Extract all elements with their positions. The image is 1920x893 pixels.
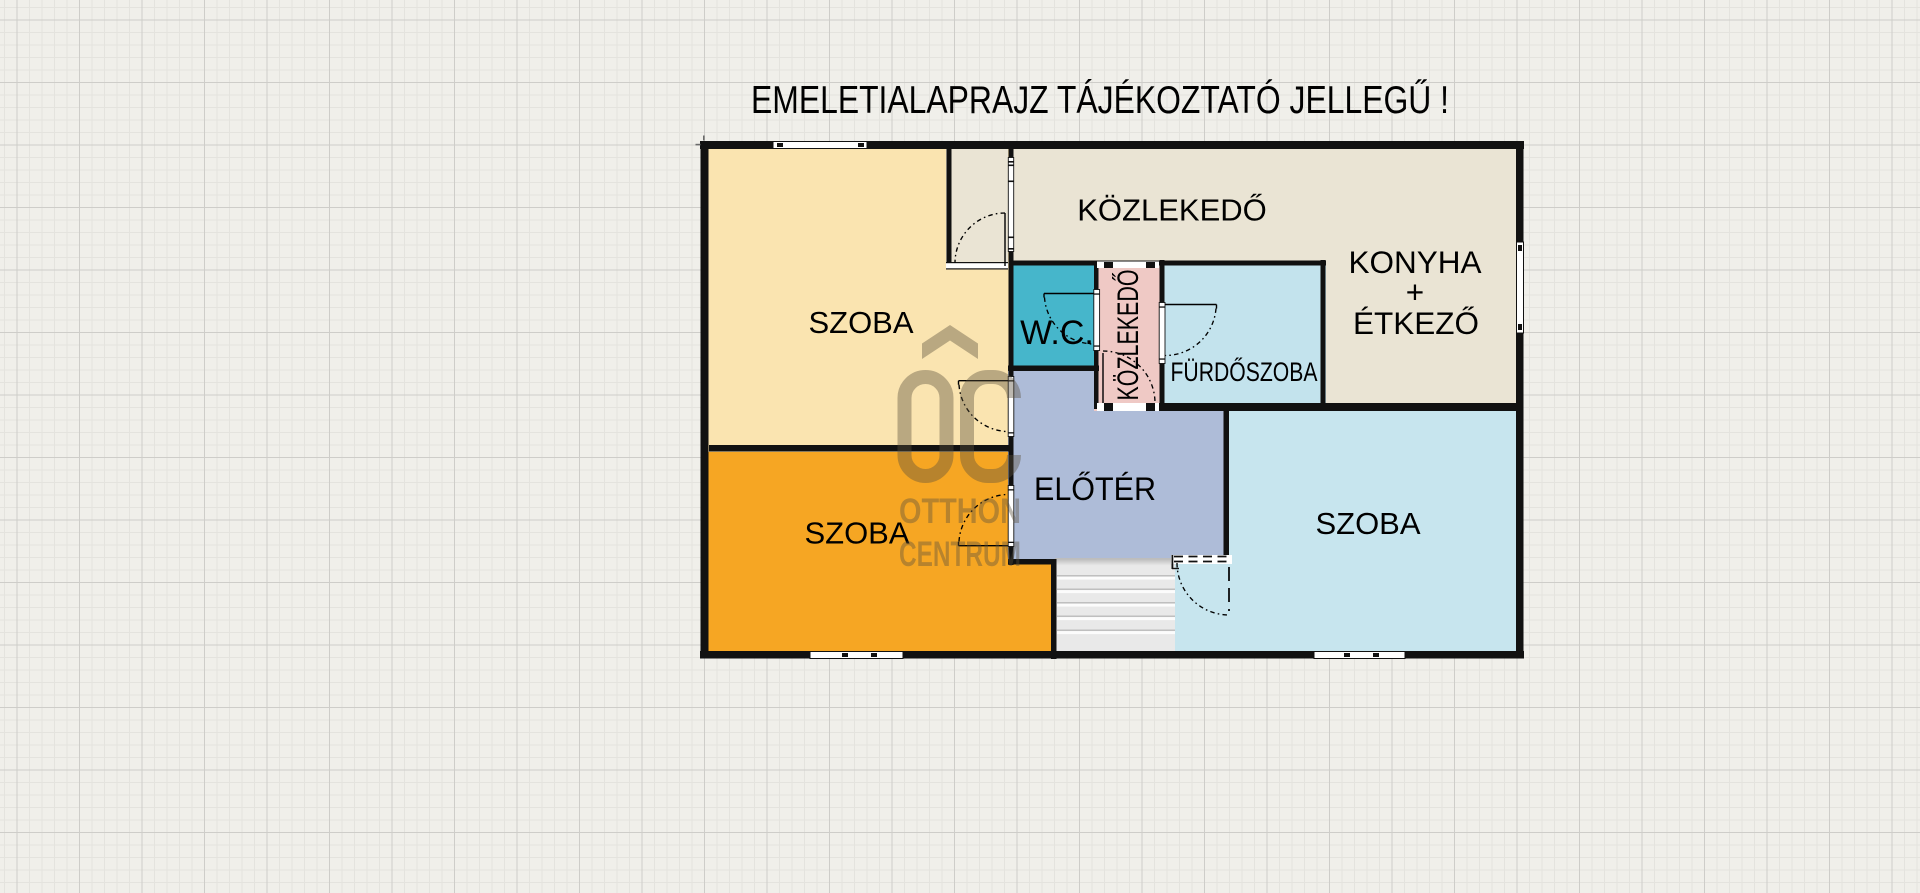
svg-text:SZOBA: SZOBA [1315,506,1420,541]
svg-text:EMELETIALAPRAJZ TÁJÉKOZTATÓ JE: EMELETIALAPRAJZ TÁJÉKOZTATÓ JELLEGŰ ! [751,79,1449,122]
svg-text:SZOBA: SZOBA [808,305,913,340]
svg-text:W.C.: W.C. [1020,314,1094,352]
svg-text:FÜRDŐSZOBA: FÜRDŐSZOBA [1171,356,1318,387]
svg-text:OTTHON: OTTHON [899,492,1021,531]
svg-text:SZOBA: SZOBA [804,516,909,551]
svg-text:KÖZLEKEDŐ: KÖZLEKEDŐ [1077,193,1267,228]
svg-text:KÖZLEKEDŐ: KÖZLEKEDŐ [1112,270,1145,401]
svg-text:CENTRUM: CENTRUM [899,535,1021,574]
svg-text:ELŐTÉR: ELŐTÉR [1034,471,1156,507]
svg-text:ÉTKEZŐ: ÉTKEZŐ [1353,305,1479,341]
